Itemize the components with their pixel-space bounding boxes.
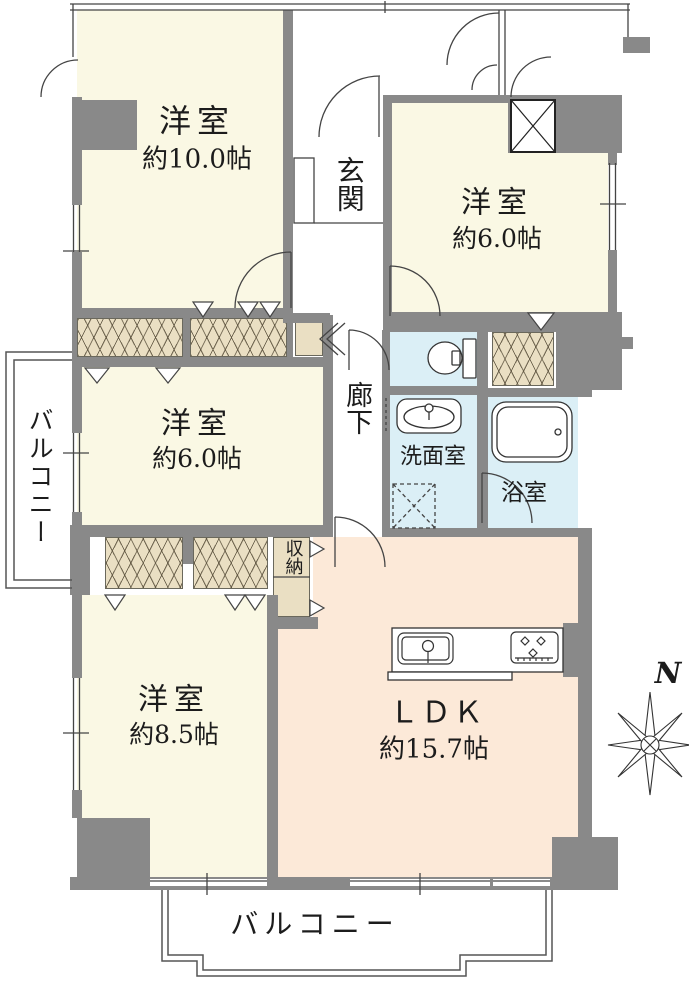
label-bathroom: 浴室 — [501, 481, 547, 505]
label-corridor: 廊下 — [342, 381, 370, 435]
wall-segment — [383, 95, 392, 330]
window-gap — [350, 879, 490, 888]
wall-segment — [273, 617, 318, 629]
label-balcony-left: バルコニー — [26, 407, 52, 547]
label-bedroom-85-size: 約8.5帖 — [129, 722, 219, 748]
room-ldk-upper — [313, 537, 580, 618]
label-bedroom-6r-size: 約6.0帖 — [452, 226, 542, 252]
closet-hatched — [77, 318, 183, 357]
label-entrance: 玄関 — [334, 156, 363, 212]
wall-pillar — [552, 837, 618, 890]
wall-segment — [283, 10, 293, 313]
pipe-space-x-icon — [510, 99, 556, 153]
wall-segment — [183, 537, 193, 564]
label-balcony-bottom: バルコニー — [230, 909, 399, 938]
label-washroom: 洗面室 — [400, 445, 466, 468]
label-bedroom-6l-size: 約6.0帖 — [152, 446, 242, 472]
window-gap — [150, 879, 267, 888]
floorplan: 洋室 約10.0帖 洋室 約6.0帖 洋室 約6.0帖 洋室 約8.5帖 ＬＤＫ… — [0, 0, 689, 1000]
compass-rose-icon — [608, 692, 689, 795]
label-bedroom-10-size: 約10.0帖 — [142, 146, 252, 173]
wall-segment — [72, 252, 82, 308]
closet-hatched — [193, 537, 268, 589]
wall-segment — [70, 533, 90, 595]
wall-tab — [617, 337, 633, 349]
label-bedroom-6r-name: 洋室 — [461, 187, 533, 219]
wall-segment — [382, 330, 390, 537]
label-compass-north: N — [655, 658, 682, 688]
wall-segment — [72, 357, 333, 367]
wall-segment — [70, 525, 333, 537]
wall-segment — [578, 537, 592, 837]
closet-hatched — [492, 332, 554, 386]
label-storage: 収納 — [283, 539, 302, 575]
room-bathroom — [488, 390, 578, 528]
wall-segment — [72, 367, 82, 433]
label-bedroom-6l-name: 洋室 — [161, 408, 233, 440]
label-bedroom-85-name: 洋室 — [138, 684, 210, 716]
window-gap — [493, 879, 550, 888]
wall-segment — [287, 318, 293, 357]
wall-segment — [72, 790, 82, 818]
wall-segment — [556, 312, 622, 390]
wall-segment — [72, 318, 77, 357]
wall-stub — [623, 37, 650, 53]
wall-segment — [183, 318, 190, 357]
wall-segment — [323, 315, 333, 537]
label-ldk-name: ＬＤＫ — [389, 697, 485, 729]
wall-segment — [72, 308, 293, 318]
wall-segment — [382, 386, 477, 395]
wall-segment — [382, 528, 592, 537]
wall-segment — [478, 388, 592, 397]
label-ldk-size: 約15.7帖 — [379, 736, 489, 763]
wall-segment — [267, 595, 278, 877]
room-toilet — [390, 332, 477, 386]
wall-pillar — [77, 100, 137, 150]
wall-segment — [72, 595, 82, 678]
wall-segment — [383, 95, 510, 103]
closet-hatched — [190, 318, 287, 357]
kitchen-wall-block — [563, 623, 590, 677]
closet-hatched — [105, 537, 183, 589]
shoe-cabinet — [295, 318, 323, 356]
label-bedroom-10-name: 洋室 — [159, 105, 235, 139]
wall-segment — [477, 332, 488, 530]
wall-segment — [608, 153, 617, 165]
